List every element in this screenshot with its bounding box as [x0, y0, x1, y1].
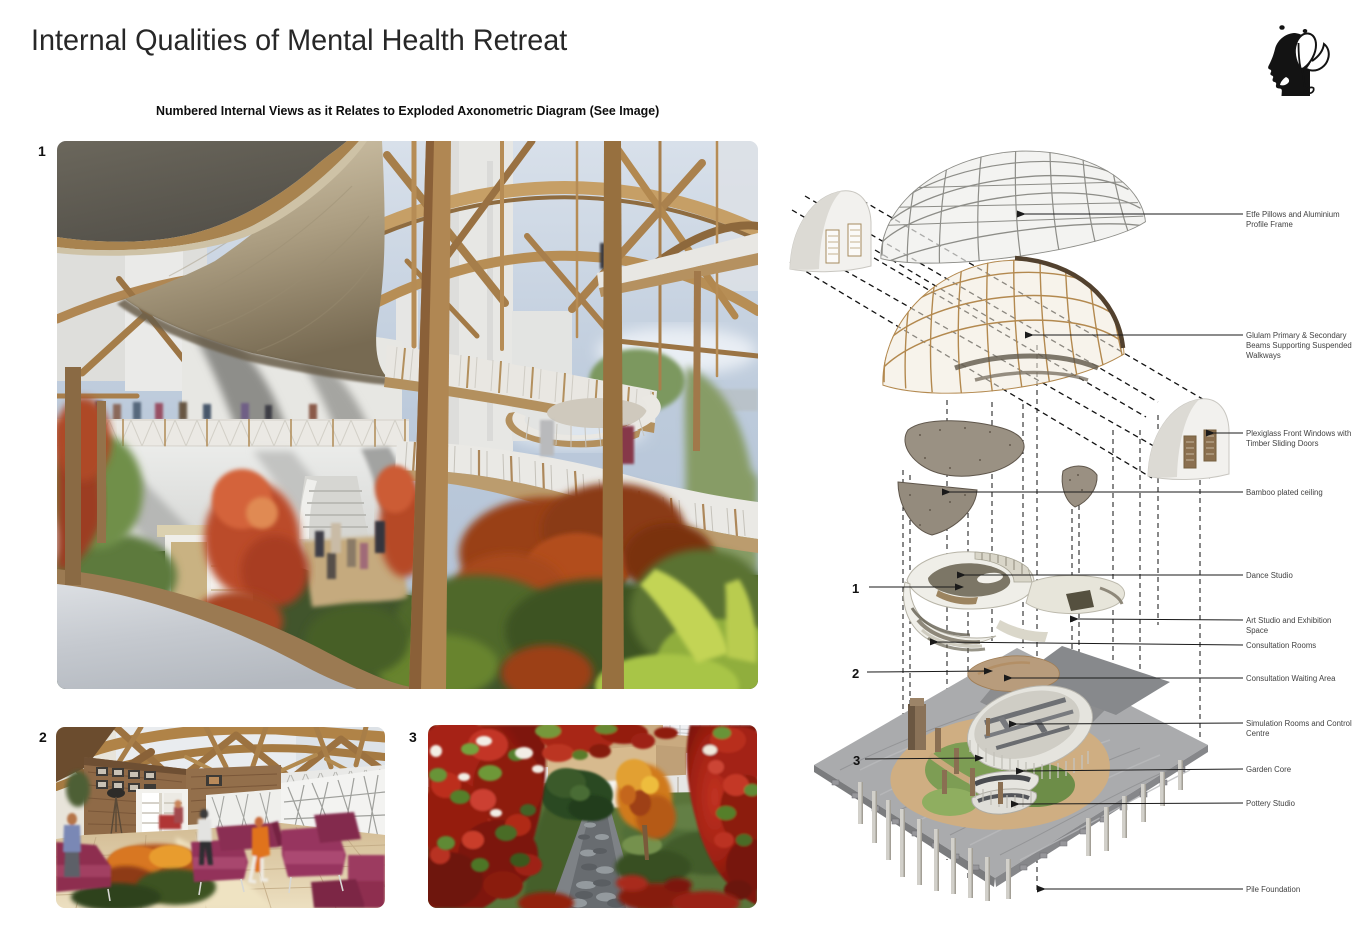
svg-text:3: 3	[853, 753, 860, 768]
svg-text:Walkways: Walkways	[1246, 351, 1281, 360]
svg-text:Consultation Waiting Area: Consultation Waiting Area	[1246, 674, 1336, 683]
svg-text:Space: Space	[1246, 626, 1268, 635]
svg-text:Timber Sliding Doors: Timber Sliding Doors	[1246, 439, 1319, 448]
svg-text:2: 2	[852, 666, 859, 681]
svg-text:Bamboo plated ceiling: Bamboo plated ceiling	[1246, 488, 1323, 497]
svg-text:Etfe Pillows and Aluminium: Etfe Pillows and Aluminium	[1246, 210, 1340, 219]
svg-text:Centre: Centre	[1246, 729, 1269, 738]
svg-text:Pile Foundation: Pile Foundation	[1246, 885, 1300, 894]
svg-text:Art Studio and Exhibition: Art Studio and Exhibition	[1246, 616, 1331, 625]
svg-text:Simulation Rooms and Control: Simulation Rooms and Control	[1246, 719, 1352, 728]
svg-text:Glulam Primary & Secondary: Glulam Primary & Secondary	[1246, 331, 1347, 340]
svg-text:1: 1	[852, 581, 859, 596]
svg-text:Consultation Rooms: Consultation Rooms	[1246, 641, 1316, 650]
svg-text:Plexiglass Front Windows with: Plexiglass Front Windows with	[1246, 429, 1351, 438]
svg-text:Garden Core: Garden Core	[1246, 765, 1291, 774]
svg-text:Pottery Studio: Pottery Studio	[1246, 799, 1296, 808]
svg-text:Profile Frame: Profile Frame	[1246, 220, 1293, 229]
svg-text:Dance Studio: Dance Studio	[1246, 571, 1293, 580]
svg-text:Beams Supporting Suspended: Beams Supporting Suspended	[1246, 341, 1352, 350]
